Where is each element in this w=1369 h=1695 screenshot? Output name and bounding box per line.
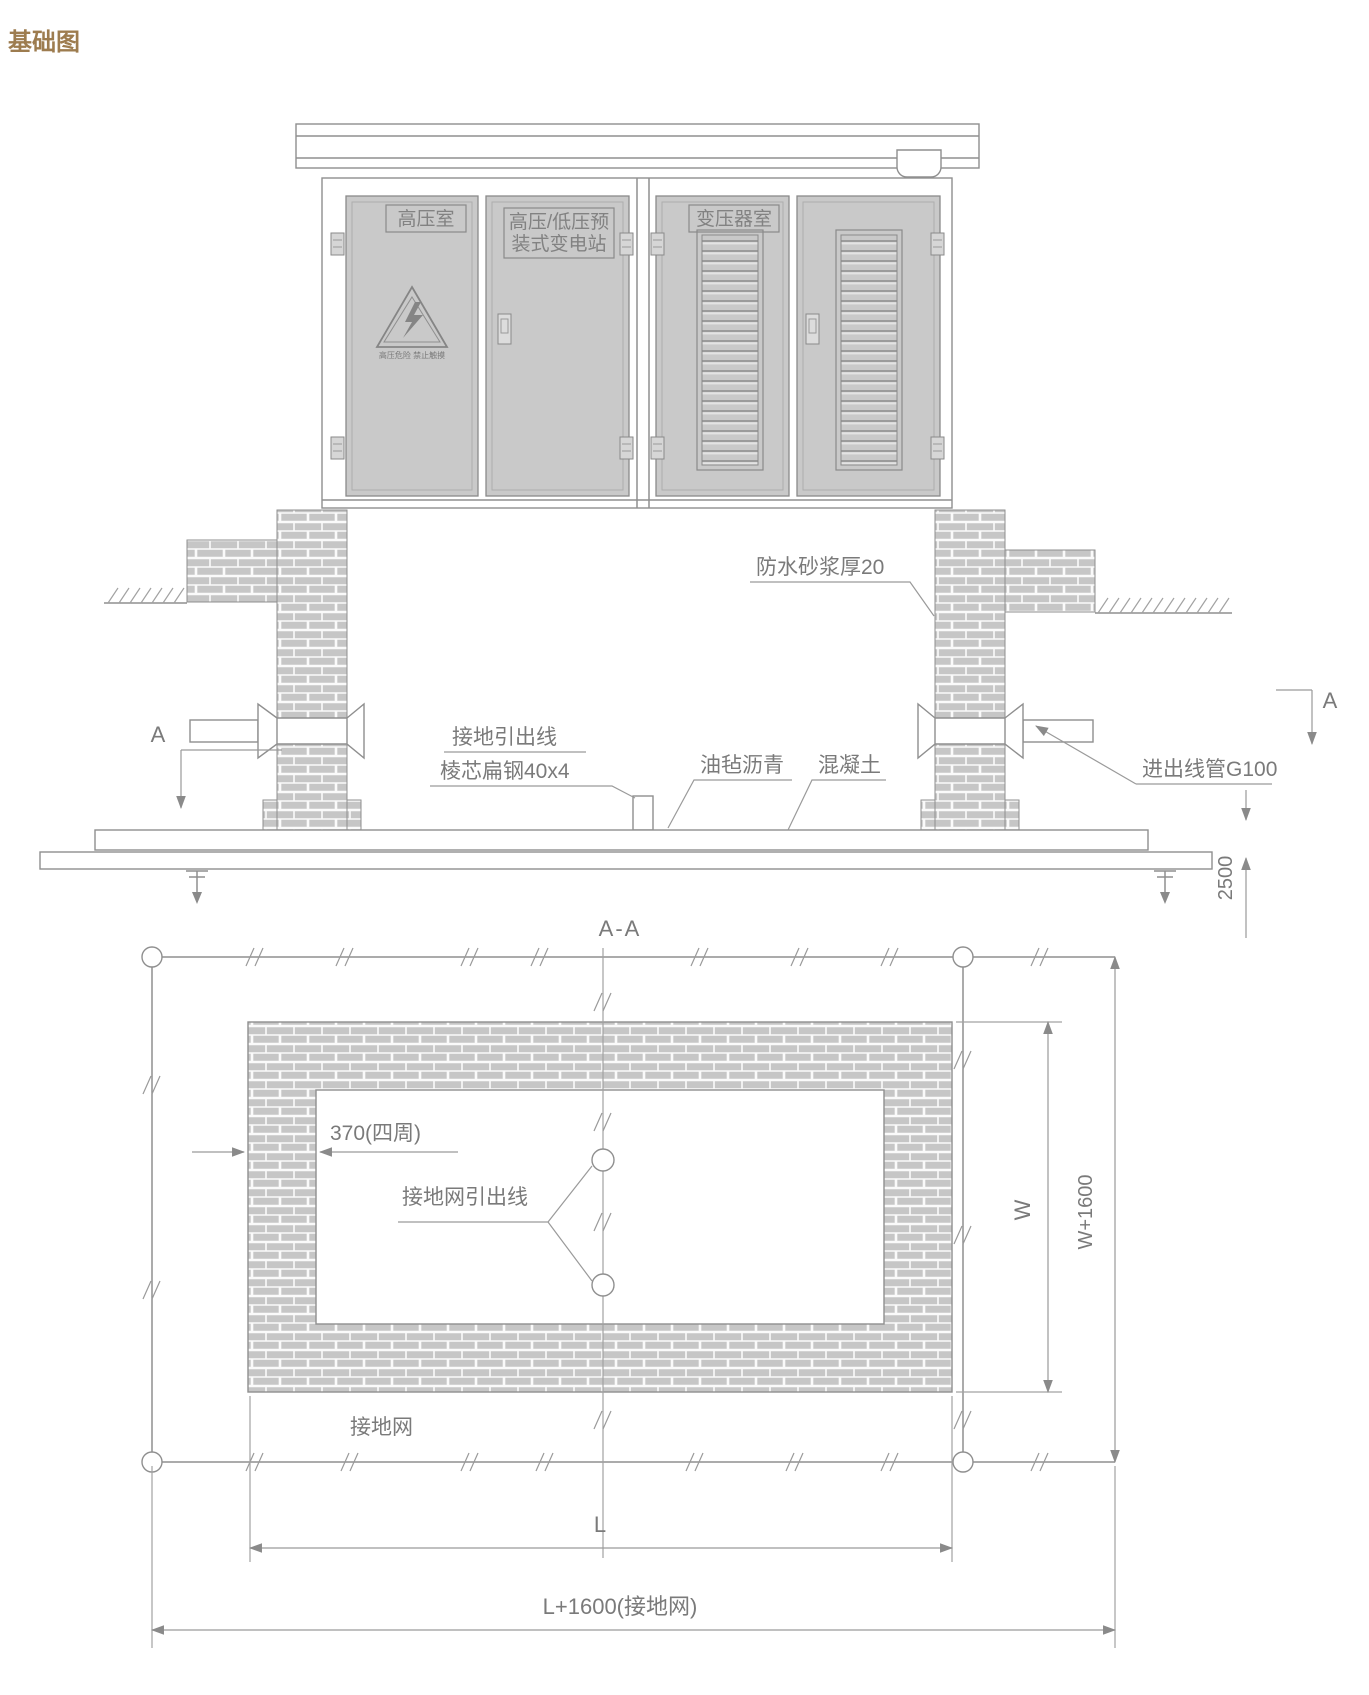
louver-vent-left [697, 230, 763, 470]
plate-transformer-room: 变压器室 [689, 205, 779, 232]
plan-view: A-A [142, 916, 1115, 1648]
grid-lead-label: 接地网引出线 [402, 1186, 528, 1209]
plate-hv-room-label: 高压室 [397, 208, 454, 230]
depth-dimension: 2500 [1215, 790, 1246, 938]
foundation-masonry [40, 510, 1232, 904]
grid-lead-point [592, 1149, 614, 1171]
width-total-dim-label: W+1600 [1075, 1174, 1097, 1249]
plan-foundation-wall [248, 1022, 952, 1392]
width-dim-label: W [1010, 1199, 1035, 1220]
pier-right [935, 510, 1005, 830]
ground-hatch-left [104, 588, 187, 603]
ledge-left [187, 540, 277, 602]
wall-thickness-label: 370(四周) [330, 1122, 421, 1145]
plate-transformer-label: 变压器室 [696, 208, 772, 230]
ledge-right [1005, 550, 1095, 612]
cabinet-roof [296, 124, 979, 177]
ground-hatch-right [1095, 598, 1232, 613]
grid-lead-point [592, 1274, 614, 1296]
asphalt-label: 油毡沥青 [700, 754, 784, 777]
roof-vent [897, 150, 941, 177]
foundation-drawing-page: 基础图 [0, 0, 1369, 1695]
base-slab-upper [95, 830, 1148, 850]
section-a-label: A [151, 722, 166, 747]
cabinet-body: 高压室 高压/低压预 装式变电站 变压器室 高压危险 禁止触摸 [322, 178, 952, 508]
grid-corner-rod [953, 947, 973, 967]
pier-left [277, 510, 347, 830]
waterproof-label: 防水砂浆厚20 [756, 556, 884, 579]
door-handle [806, 314, 819, 344]
door-hv [346, 196, 478, 496]
ground-lead-label-1: 接地引出线 [452, 726, 557, 749]
foundation-drawing: 基础图 [0, 0, 1369, 1695]
section-a-label: A [1323, 688, 1338, 713]
ground-anchor-left [186, 871, 208, 904]
grid-label: 接地网 [350, 1416, 413, 1439]
grid-corner-rod [142, 947, 162, 967]
section-title: A-A [599, 916, 642, 941]
length-dim-label: L [594, 1512, 606, 1537]
grid-corner-rod [953, 1452, 973, 1472]
concrete-label: 混凝土 [818, 754, 881, 777]
ground-lead-rod [633, 796, 653, 830]
ground-anchor-right [1154, 871, 1176, 904]
ground-lead-label-2: 棱芯扁钢40x4 [440, 760, 570, 783]
section-marker-right: A [1276, 688, 1338, 744]
door-handle [498, 314, 511, 344]
plate-prefab-line1: 高压/低压预 [509, 211, 609, 233]
warning-caption: 高压危险 禁止触摸 [379, 350, 445, 360]
plate-hv-room: 高压室 [386, 205, 466, 232]
length-total-dim-label: L+1600(接地网) [543, 1594, 698, 1619]
louver-vent-right [836, 230, 902, 470]
plate-prefab-line2: 装式变电站 [511, 233, 606, 255]
page-title: 基础图 [8, 29, 80, 56]
base-slab-lower [40, 852, 1212, 869]
conduit-label: 进出线管G100 [1142, 758, 1277, 781]
depth-dim-label: 2500 [1215, 856, 1237, 901]
elevation-view: 高压室 高压/低压预 装式变电站 变压器室 高压危险 禁止触摸 [40, 124, 1338, 938]
